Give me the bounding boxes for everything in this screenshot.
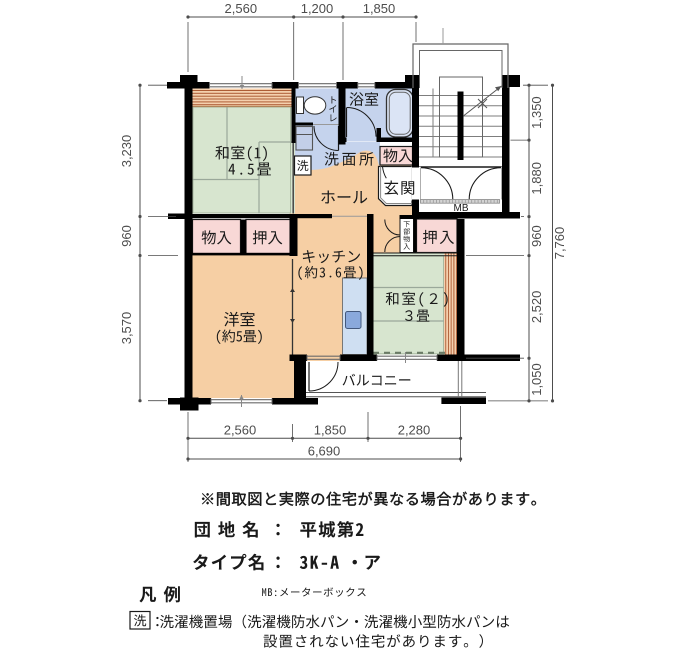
svg-text:3,230: 3,230 <box>119 135 134 168</box>
svg-text:1,350: 1,350 <box>529 96 544 129</box>
svg-text:1,200: 1,200 <box>301 1 334 16</box>
svg-text:960: 960 <box>529 225 544 247</box>
svg-text:2,280: 2,280 <box>398 423 431 438</box>
svg-text:7,760: 7,760 <box>552 227 567 260</box>
svg-text:1,850: 1,850 <box>363 1 396 16</box>
svg-text:6,690: 6,690 <box>308 443 341 458</box>
svg-text:2,560: 2,560 <box>224 423 257 438</box>
svg-text:2,520: 2,520 <box>529 291 544 324</box>
svg-text:3,570: 3,570 <box>119 312 134 345</box>
svg-text:MB: MB <box>454 203 469 214</box>
svg-text:960: 960 <box>119 225 134 247</box>
svg-text:2,560: 2,560 <box>225 1 258 16</box>
svg-text:1,050: 1,050 <box>529 363 544 396</box>
svg-text:1,880: 1,880 <box>529 162 544 195</box>
svg-text:1,850: 1,850 <box>314 423 347 438</box>
